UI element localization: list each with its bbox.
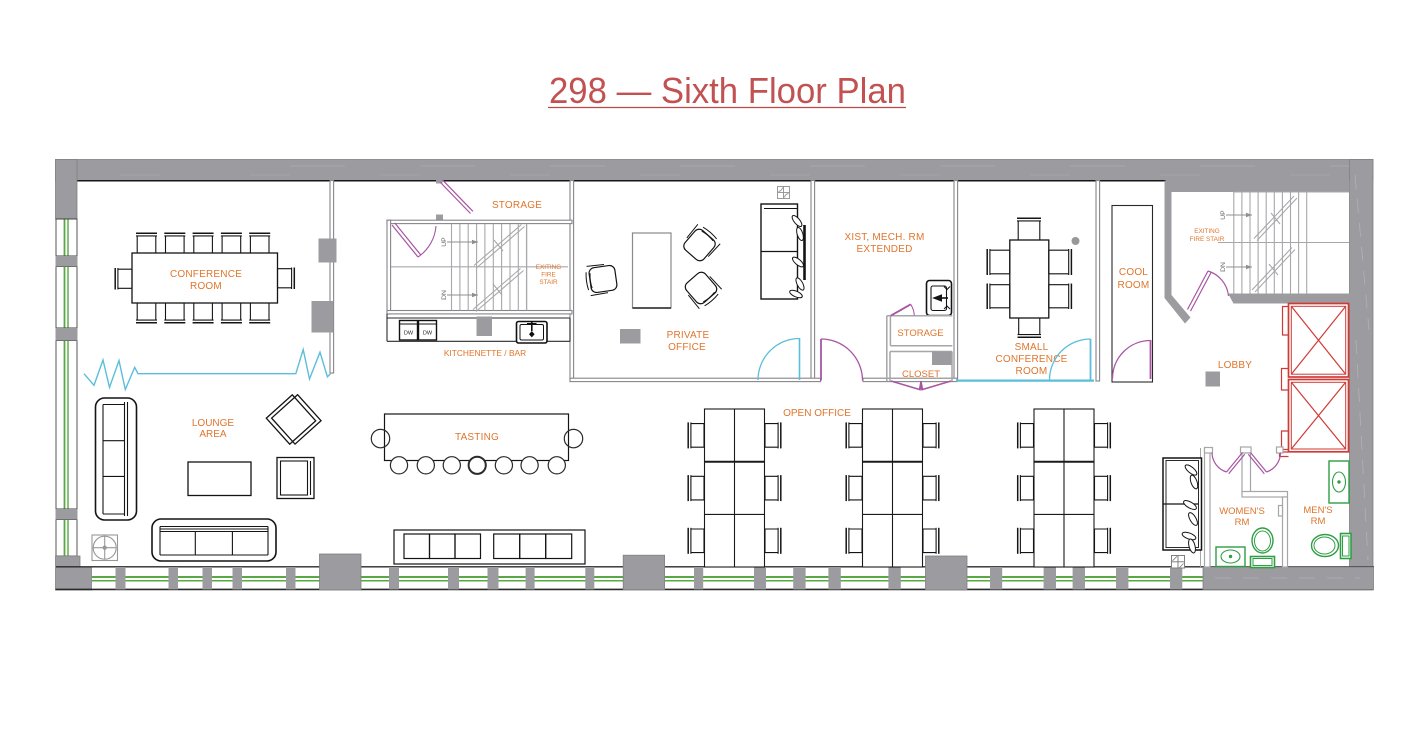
svg-text:SMALL: SMALL — [1015, 342, 1049, 353]
svg-text:RM: RM — [1235, 517, 1250, 528]
svg-text:EXITING: EXITING — [536, 264, 562, 271]
svg-text:UP: UP — [1220, 210, 1227, 220]
svg-text:STAIR: STAIR — [539, 279, 558, 286]
svg-text:DW: DW — [404, 331, 414, 337]
svg-text:STORAGE: STORAGE — [897, 328, 943, 339]
svg-text:ROOM: ROOM — [1016, 366, 1048, 377]
svg-text:CONFERENCE: CONFERENCE — [170, 269, 242, 280]
svg-text:EXITING: EXITING — [1194, 228, 1220, 235]
svg-text:FIRE STAIR: FIRE STAIR — [1190, 236, 1225, 243]
svg-text:AREA: AREA — [199, 429, 227, 440]
svg-text:RM: RM — [1311, 516, 1326, 527]
svg-text:XIST, MECH. RM: XIST, MECH. RM — [844, 232, 924, 243]
svg-text:298 — Sixth Floor Plan: 298 — Sixth Floor Plan — [549, 70, 906, 111]
svg-text:UP: UP — [441, 237, 448, 247]
svg-text:LOUNGE: LOUNGE — [192, 418, 235, 429]
svg-text:ROOM: ROOM — [1118, 280, 1150, 291]
svg-text:DW: DW — [423, 331, 433, 337]
svg-text:TASTING: TASTING — [455, 432, 499, 443]
svg-text:WOMEN'S: WOMEN'S — [1219, 506, 1265, 517]
svg-text:DN: DN — [1220, 262, 1227, 272]
svg-text:STORAGE: STORAGE — [492, 200, 542, 211]
svg-text:EXTENDED: EXTENDED — [856, 244, 912, 255]
svg-text:KITCHENETTE / BAR: KITCHENETTE / BAR — [444, 348, 526, 358]
svg-text:CLOSET: CLOSET — [902, 369, 940, 380]
svg-text:MEN'S: MEN'S — [1303, 505, 1332, 516]
svg-text:ROOM: ROOM — [190, 281, 222, 292]
svg-text:FIRE: FIRE — [541, 272, 556, 279]
svg-text:OPEN OFFICE: OPEN OFFICE — [783, 408, 851, 419]
svg-text:PRIVATE: PRIVATE — [667, 330, 710, 341]
svg-text:COOL: COOL — [1119, 267, 1148, 278]
svg-text:OFFICE: OFFICE — [668, 342, 706, 353]
svg-text:DN: DN — [441, 290, 448, 300]
svg-text:LOBBY: LOBBY — [1218, 360, 1252, 371]
